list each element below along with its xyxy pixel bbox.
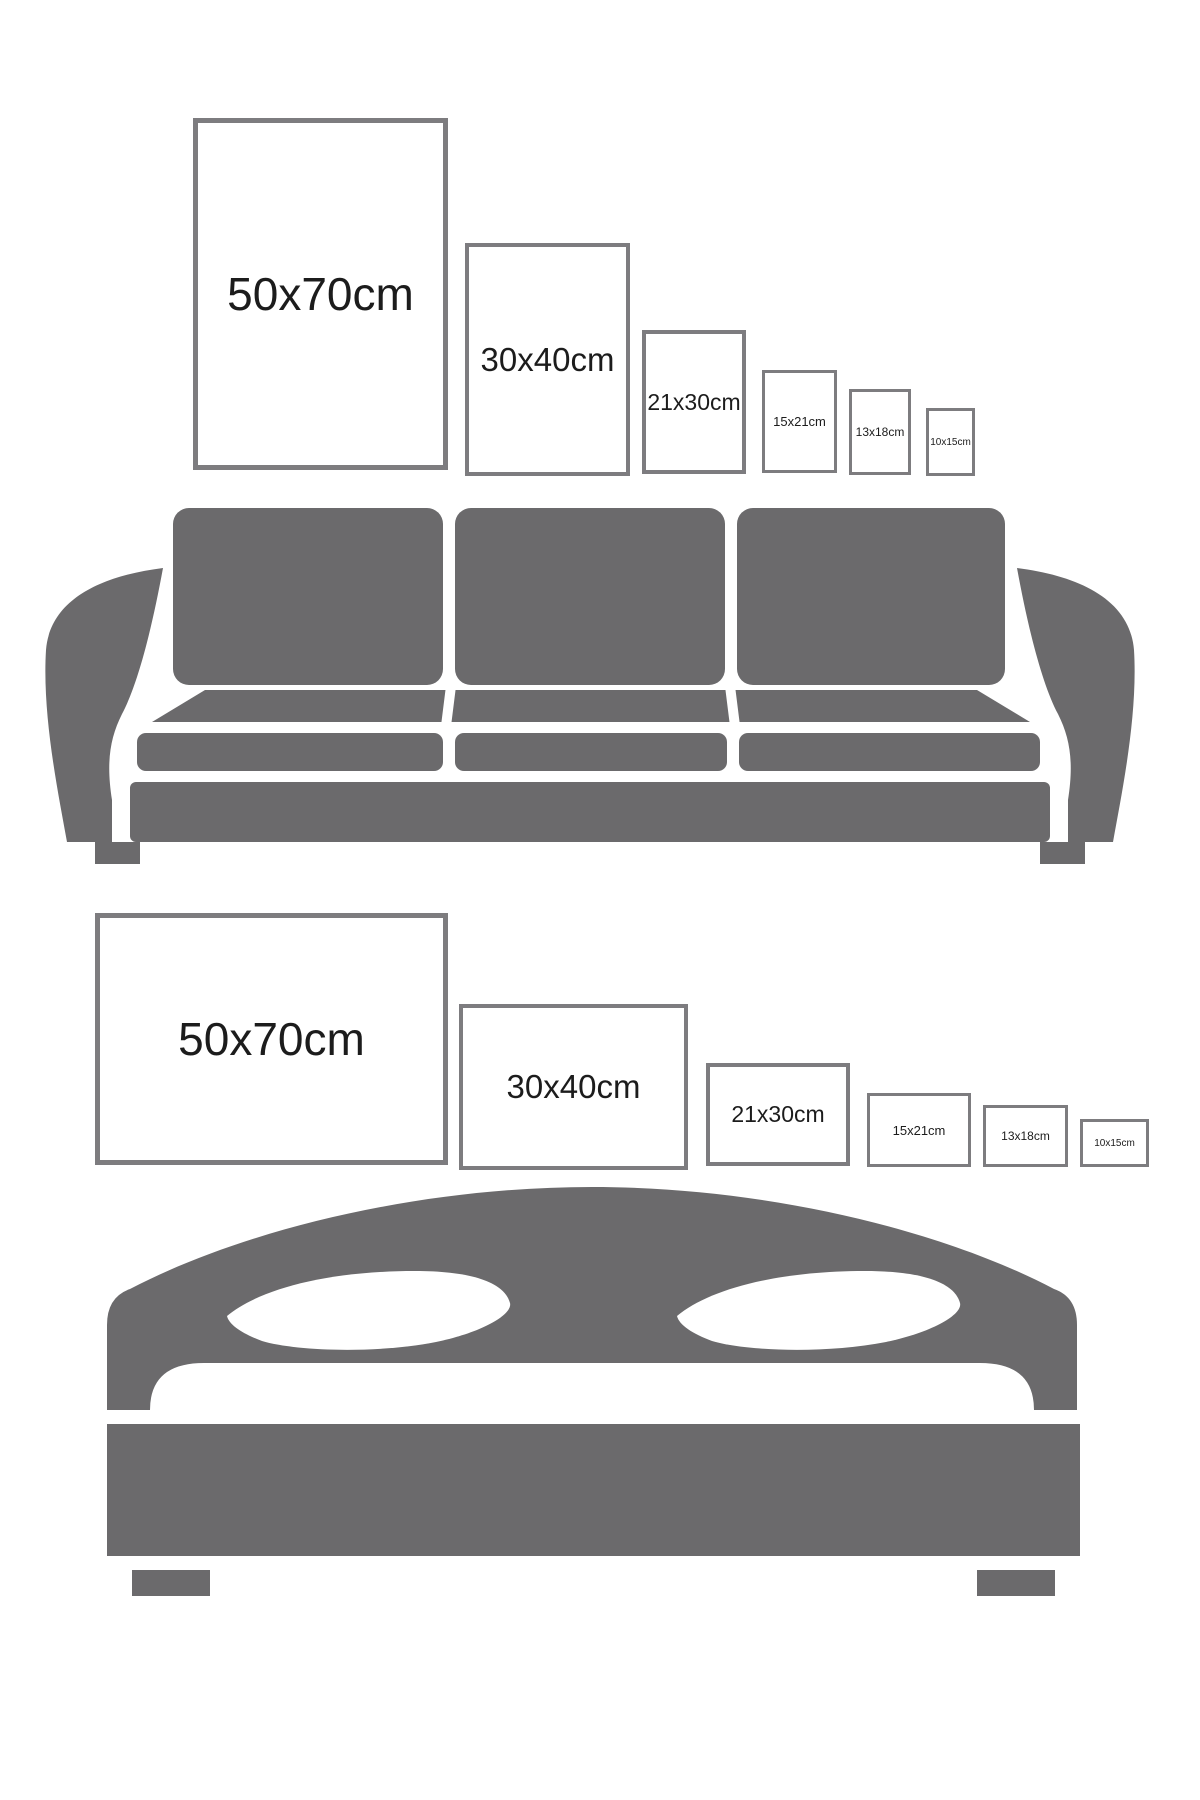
sofa-seat-deck [152,690,1030,722]
size-frame-portrait-10x15: 10x15cm [926,408,975,476]
sofa-deck-seam [446,686,451,726]
size-label: 30x40cm [507,1068,641,1106]
size-label: 15x21cm [893,1123,946,1138]
size-frame-portrait-21x30: 21x30cm [642,330,746,474]
sofa-deck-seam [730,686,735,726]
size-frame-portrait-13x18: 13x18cm [849,389,911,475]
size-frame-portrait-15x21: 15x21cm [762,370,837,473]
sofa-base [130,782,1050,842]
size-frame-portrait-30x40: 30x40cm [465,243,630,476]
sofa-leg [1040,842,1085,864]
sofa-back-cushion [737,508,1005,685]
size-label: 13x18cm [856,425,905,439]
size-label: 13x18cm [1001,1129,1050,1143]
size-label: 21x30cm [731,1101,824,1128]
size-frame-portrait-50x70: 50x70cm [193,118,448,470]
bed-base [107,1424,1080,1556]
sofa-back-cushion [173,508,443,685]
sofa-leg [95,842,140,864]
size-frame-landscape-30x40: 30x40cm [459,1004,688,1170]
sofa-icon [40,500,1140,870]
sofa-seat-cushion [137,733,443,771]
size-label: 10x15cm [1094,1138,1135,1149]
size-label: 30x40cm [481,341,615,379]
size-frame-landscape-10x15: 10x15cm [1080,1119,1149,1167]
size-frame-landscape-21x30: 21x30cm [706,1063,850,1166]
size-label: 10x15cm [930,437,971,448]
size-label: 50x70cm [178,1012,365,1066]
size-label: 21x30cm [647,389,740,416]
size-label: 50x70cm [227,267,414,321]
bed-leg [132,1570,210,1596]
sofa-back-cushion [455,508,725,685]
size-frame-landscape-13x18: 13x18cm [983,1105,1068,1167]
sofa-seat-cushion [739,733,1040,771]
size-guide-infographic: 50x70cm 30x40cm 21x30cm 15x21cm 13x18cm … [0,0,1200,1800]
size-label: 15x21cm [773,414,826,429]
sofa-seat-cushion [455,733,727,771]
bed-leg [977,1570,1055,1596]
size-frame-landscape-15x21: 15x21cm [867,1093,971,1167]
bed-icon [100,1180,1090,1610]
size-frame-landscape-50x70: 50x70cm [95,913,448,1165]
